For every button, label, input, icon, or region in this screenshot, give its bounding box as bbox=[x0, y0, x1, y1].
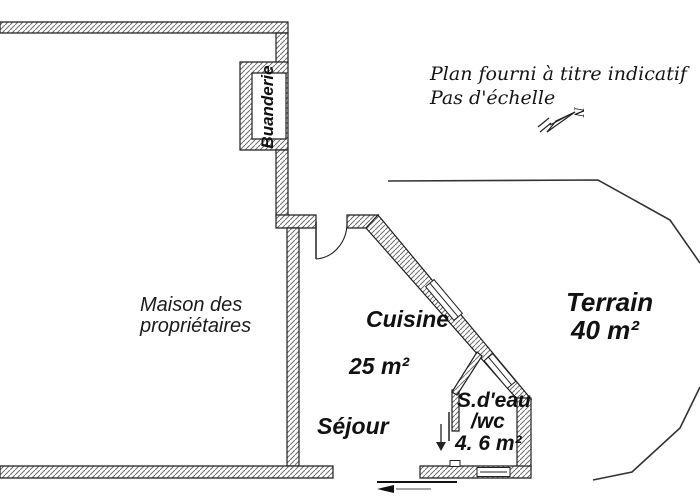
wall-right-mid bbox=[276, 150, 288, 216]
room-area-salle-eau: 4. 6 m² bbox=[455, 432, 522, 456]
wall-top bbox=[0, 22, 288, 33]
room-label-maison: Maison des propriétaires bbox=[140, 295, 251, 337]
plan-note-line1: Plan fourni à titre indicatif bbox=[430, 63, 687, 85]
room-label-buanderie: Buanderie bbox=[258, 62, 278, 152]
room-label-cuisine: Cuisine bbox=[366, 306, 449, 333]
room-label-salle-eau-line2: /wc bbox=[471, 410, 505, 434]
door-jamb-notch bbox=[450, 461, 460, 467]
room-label-maison-line2: propriétaires bbox=[140, 316, 251, 337]
wall-divider-vertical bbox=[287, 228, 299, 466]
north-arrow-icon: N bbox=[538, 106, 587, 132]
wall-door-left bbox=[276, 215, 316, 228]
floor-plan-canvas: N Plan fourni à titre indicatif Pas d'éc… bbox=[0, 0, 700, 500]
wall-bottom-left bbox=[0, 466, 333, 478]
wall-right-upper bbox=[276, 33, 288, 63]
room-label-maison-line1: Maison des bbox=[140, 295, 251, 316]
window-diagonal-2-icon bbox=[484, 354, 516, 389]
room-label-terrain: Terrain bbox=[566, 287, 653, 318]
room-label-sejour: Séjour bbox=[317, 413, 389, 440]
wall-sdeau-bottom bbox=[420, 466, 531, 478]
entry-arrow-icon bbox=[377, 482, 457, 493]
sdeau-entry-icon bbox=[436, 412, 449, 451]
room-area-cuisine: 25 m² bbox=[349, 353, 409, 380]
room-area-terrain: 40 m² bbox=[571, 315, 639, 346]
window-bottom-icon bbox=[477, 468, 510, 477]
plan-note-line2: Pas d'échelle bbox=[430, 87, 555, 109]
north-arrow-label: N bbox=[571, 106, 587, 118]
door-swing-icon bbox=[316, 222, 347, 259]
